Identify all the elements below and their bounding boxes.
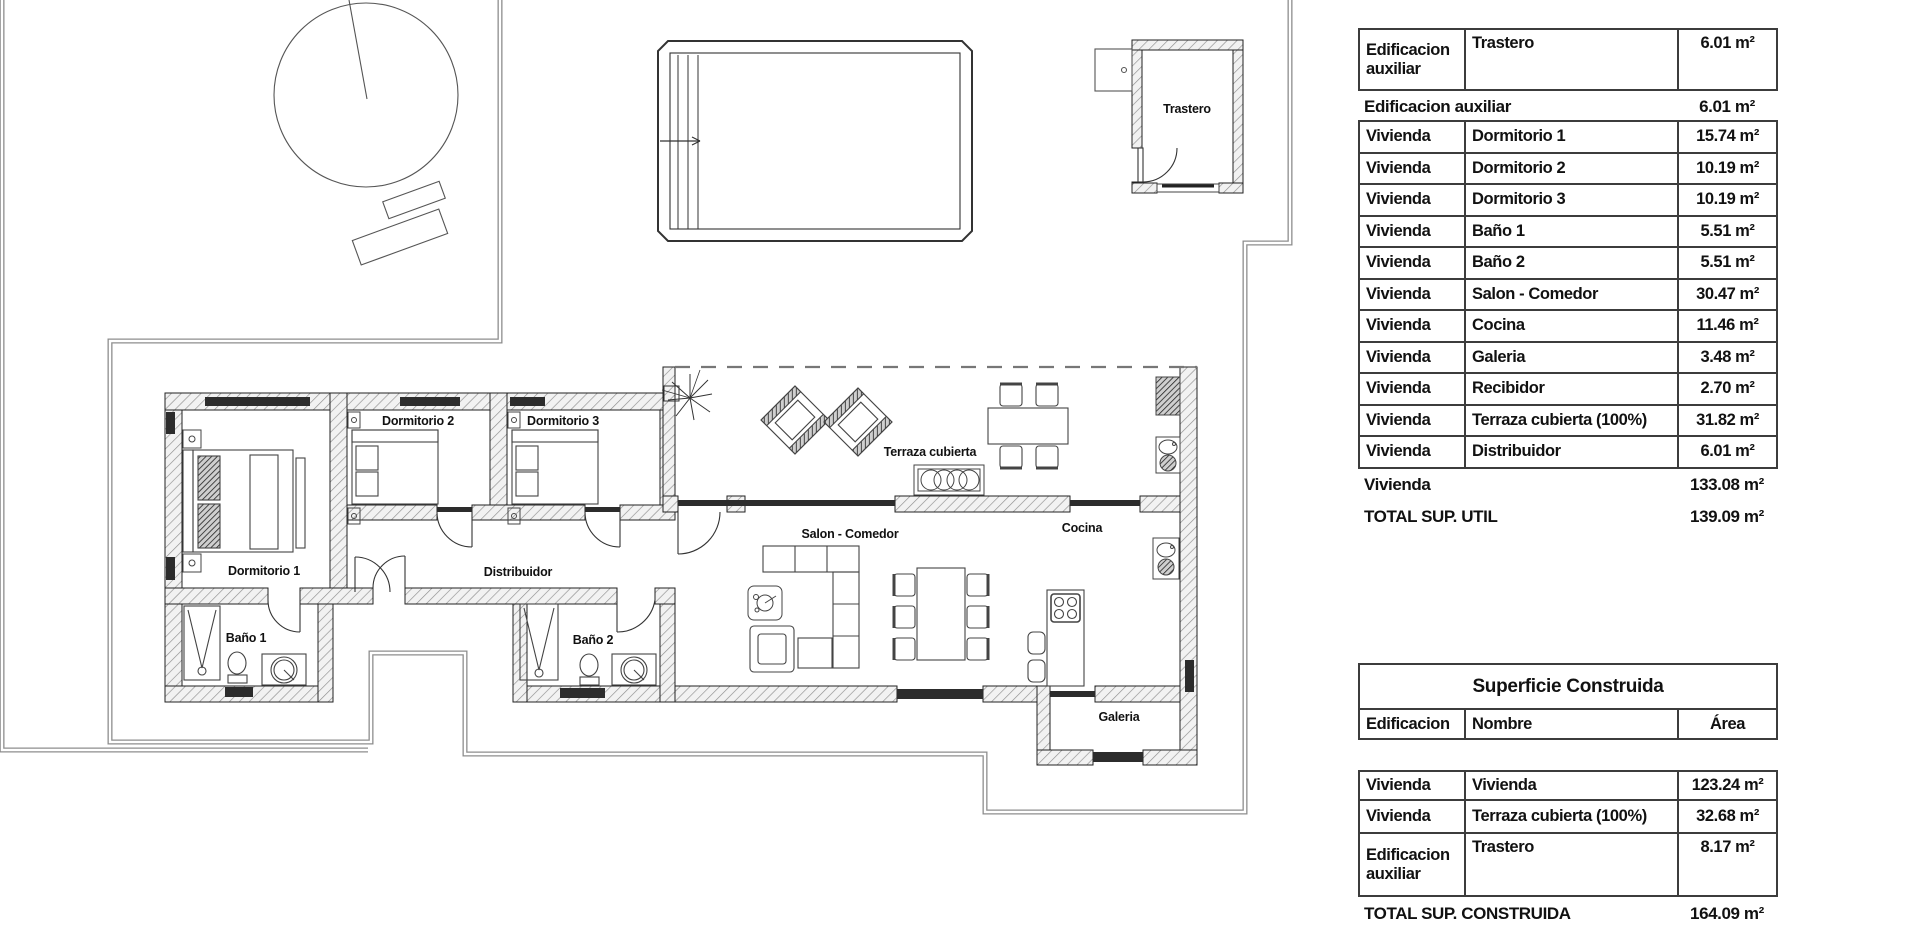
cell-c1: Vivienda — [1360, 220, 1464, 243]
table-row: ViviendaTerraza cubierta (100%)32.68 m² — [1358, 799, 1778, 834]
superficie-construida-rows: ViviendaVivienda123.24 m²ViviendaTerraza… — [1358, 770, 1778, 897]
total-sup-util-row: TOTAL SUP. UTIL 139.09 m² — [1358, 501, 1778, 534]
dining-table — [894, 568, 988, 660]
table-row: ViviendaRecibidor2.70 m² — [1358, 372, 1778, 406]
total-label: TOTAL SUP. CONSTRUIDA — [1360, 904, 1678, 924]
subtotal-value: 6.01 m² — [1678, 97, 1776, 117]
ceiling-fan-symbol — [748, 586, 782, 620]
room-label-distribuidor: Distribuidor — [484, 565, 553, 579]
cell-c1: Vivienda — [1360, 157, 1464, 180]
floorplan-page: { "plan": { "labels": { "dormitorio1": "… — [0, 0, 1920, 920]
cell-c1: Vivienda — [1360, 125, 1464, 148]
cell-c3: 2.70 m² — [1677, 374, 1776, 404]
door-bano1 — [268, 600, 300, 632]
room-label-dormitorio1: Dormitorio 1 — [228, 564, 300, 578]
garden-tree — [274, 0, 458, 265]
terraza-table — [988, 384, 1068, 468]
cell-c2: Baño 2 — [1464, 248, 1677, 278]
table-row: ViviendaDormitorio 115.74 m² — [1358, 120, 1778, 154]
room-label-dormitorio2: Dormitorio 2 — [382, 414, 454, 428]
room-label-trastero: Trastero — [1163, 102, 1211, 116]
cell-c1: Vivienda — [1360, 805, 1464, 828]
cell-c2: Dormitorio 1 — [1464, 122, 1677, 152]
table-row: ViviendaDormitorio 210.19 m² — [1358, 152, 1778, 186]
superficie-construida-table: Superficie Construida Edificacion Nombre… — [1358, 663, 1778, 931]
subtotal-label: Edificacion auxiliar — [1360, 97, 1678, 117]
subtotal-label: Vivienda — [1360, 475, 1678, 495]
cell-c2: Salon - Comedor — [1464, 280, 1677, 310]
table-row: ViviendaDormitorio 310.19 m² — [1358, 183, 1778, 217]
bed-dormitorio1 — [183, 450, 305, 552]
table-row: Edificacion auxiliar Trastero 6.01 m² — [1358, 28, 1778, 91]
cell-c3: 32.68 m² — [1677, 801, 1776, 832]
cell-c1: Vivienda — [1360, 346, 1464, 369]
total-value: 139.09 m² — [1678, 507, 1776, 527]
cell-c1: Vivienda — [1360, 409, 1464, 432]
cell-c2: Distribuidor — [1464, 437, 1677, 467]
cell-c2: Vivienda — [1464, 772, 1677, 799]
cell-c3: 10.19 m² — [1677, 185, 1776, 215]
cell-c1: Vivienda — [1360, 251, 1464, 274]
cell-c1: Vivienda — [1360, 440, 1464, 463]
kitchen-counter-east — [1153, 377, 1180, 579]
trastero-annex — [1095, 49, 1132, 91]
table-row: ViviendaCocina11.46 m² — [1358, 309, 1778, 343]
table-row: ViviendaTerraza cubierta (100%)31.82 m² — [1358, 404, 1778, 438]
table-row: ViviendaVivienda123.24 m² — [1358, 770, 1778, 801]
subtotal-value: 133.08 m² — [1678, 475, 1776, 495]
superficie-util-rows: ViviendaDormitorio 115.74 m²ViviendaDorm… — [1358, 120, 1778, 469]
house-walls — [165, 367, 1197, 765]
bano1-fixtures — [184, 606, 306, 685]
cell-c2: Galeria — [1464, 343, 1677, 373]
door-bano2 — [617, 600, 655, 632]
col-header-nombre: Nombre — [1464, 710, 1677, 738]
kitchen-island — [1028, 590, 1084, 686]
cell-c2: Trastero — [1464, 834, 1677, 895]
table-row: ViviendaBaño 15.51 m² — [1358, 215, 1778, 249]
trastero-door — [1138, 148, 1177, 182]
cell-c3: 15.74 m² — [1677, 122, 1776, 152]
total-sup-construida-row: TOTAL SUP. CONSTRUIDA 164.09 m² — [1358, 897, 1778, 931]
cell-c1: Vivienda — [1360, 283, 1464, 306]
table-row: ViviendaBaño 25.51 m² — [1358, 246, 1778, 280]
cell-c2: Recibidor — [1464, 374, 1677, 404]
door-salon-terraza — [678, 512, 720, 554]
pool-entry-arrow — [660, 137, 700, 145]
total-value: 164.09 m² — [1678, 904, 1776, 924]
trastero-building: Trastero — [1095, 40, 1243, 193]
cell-c3: 123.24 m² — [1677, 772, 1776, 799]
room-label-bano2: Baño 2 — [573, 633, 614, 647]
terraza — [662, 367, 1197, 495]
table-row: ViviendaDistribuidor6.01 m² — [1358, 435, 1778, 469]
table-row: Edificacion auxiliarTrastero8.17 m² — [1358, 832, 1778, 897]
room-label-salon-comedor: Salon - Comedor — [801, 527, 898, 541]
col-header-edificacion: Edificacion — [1360, 713, 1464, 736]
cell-c3: 6.01 m² — [1677, 437, 1776, 467]
cell-c1: Vivienda — [1360, 377, 1464, 400]
lounge-chair-2 — [824, 388, 892, 456]
room-label-terraza: Terraza cubierta — [884, 445, 978, 459]
nightstands-dormitorio1 — [183, 430, 201, 572]
cell-c2: Dormitorio 3 — [1464, 185, 1677, 215]
room-label-bano1: Baño 1 — [226, 631, 267, 645]
room-label-galeria: Galeria — [1099, 710, 1141, 724]
cell-c2: Dormitorio 2 — [1464, 154, 1677, 184]
table-header-row: Edificacion Nombre Área — [1358, 708, 1778, 740]
swimming-pool — [658, 41, 972, 241]
superficie-util-table: Edificacion auxiliar Trastero 6.01 m² Ed… — [1358, 28, 1778, 534]
terraza-rug — [914, 465, 984, 495]
cell-c3: 5.51 m² — [1677, 217, 1776, 247]
table-row: ViviendaGaleria3.48 m² — [1358, 341, 1778, 375]
cell-c2: Terraza cubierta (100%) — [1464, 406, 1677, 436]
cell-c1: Vivienda — [1360, 188, 1464, 211]
cell-c2: Baño 1 — [1464, 217, 1677, 247]
cell-c1: Edificacion auxiliar — [1360, 844, 1464, 886]
room-label-cocina: Cocina — [1062, 521, 1104, 535]
cell-c1: Vivienda — [1360, 774, 1464, 797]
cell-edificacion: Edificacion auxiliar — [1360, 39, 1464, 81]
bed-dormitorio3 — [512, 430, 598, 504]
cell-c3: 10.19 m² — [1677, 154, 1776, 184]
door-dormitorio3 — [585, 512, 620, 547]
bed-dormitorio2 — [352, 430, 438, 504]
sofa — [750, 546, 859, 672]
subtotal-row-vivienda: Vivienda 133.08 m² — [1358, 469, 1778, 501]
subtotal-row-aux: Edificacion auxiliar 6.01 m² — [1358, 91, 1778, 122]
col-header-area: Área — [1677, 710, 1776, 738]
cell-c3: 30.47 m² — [1677, 280, 1776, 310]
cell-c1: Vivienda — [1360, 314, 1464, 337]
cell-c2: Cocina — [1464, 311, 1677, 341]
cell-nombre: Trastero — [1464, 30, 1677, 89]
lounge-chair-1 — [761, 386, 829, 454]
cell-c2: Terraza cubierta (100%) — [1464, 801, 1677, 832]
cell-c3: 3.48 m² — [1677, 343, 1776, 373]
total-label: TOTAL SUP. UTIL — [1360, 507, 1678, 527]
table-title: Superficie Construida — [1358, 663, 1778, 710]
door-dormitorio2 — [437, 512, 472, 547]
table-row: ViviendaSalon - Comedor30.47 m² — [1358, 278, 1778, 312]
cell-c3: 8.17 m² — [1677, 834, 1776, 895]
cell-c3: 31.82 m² — [1677, 406, 1776, 436]
cell-c3: 11.46 m² — [1677, 311, 1776, 341]
cell-area: 6.01 m² — [1677, 30, 1776, 89]
room-label-dormitorio3: Dormitorio 3 — [527, 414, 599, 428]
cell-c3: 5.51 m² — [1677, 248, 1776, 278]
